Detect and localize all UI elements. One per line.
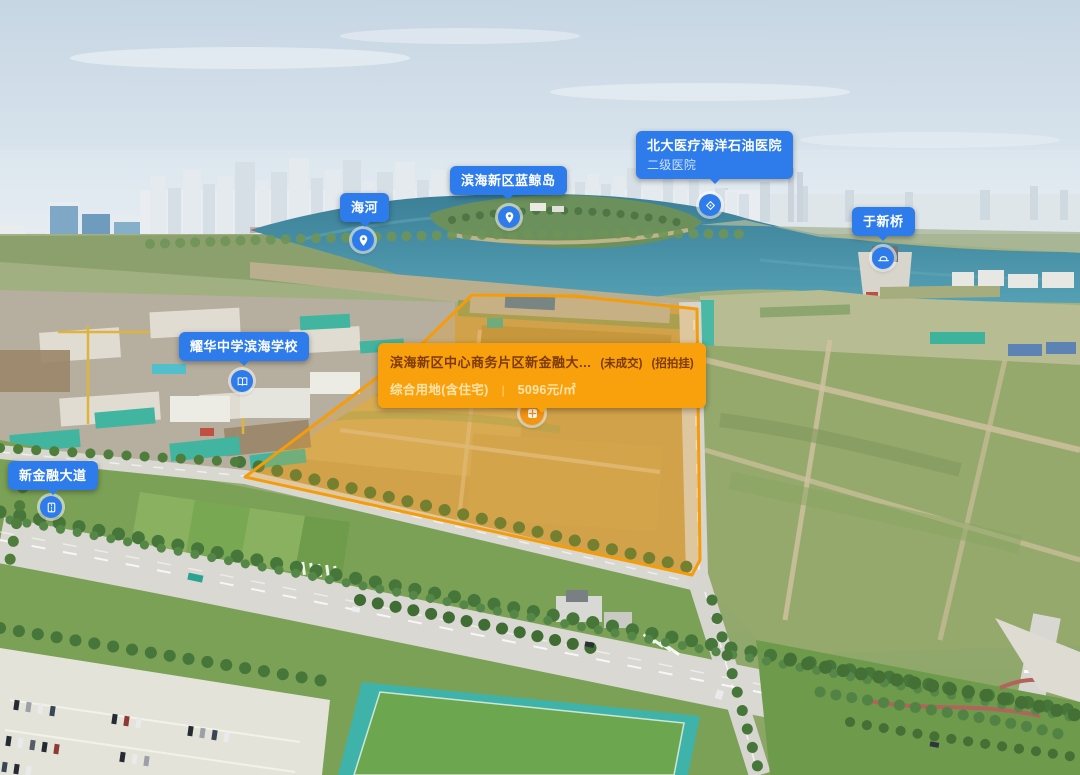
poi-label-subtitle: 二级医院 [647,159,782,171]
parcel-title: 滨海新区中心商务片区新金融大... [390,352,591,371]
parcel-sale-type-tag: (招拍挂) [652,355,694,371]
poi-label-haihe[interactable]: 海河 [340,193,389,222]
poi-label-blue-whale-island[interactable]: 滨海新区蓝鲸岛 [450,166,567,195]
parcel-card-row1: 滨海新区中心商务片区新金融大... (未成交) (招拍挂) [390,352,694,371]
road-icon[interactable] [40,496,62,518]
divider: | [502,383,505,397]
east-fields [700,340,1080,655]
poi-label-school[interactable]: 耀华中学滨海学校 [179,332,309,361]
poi-label-text: 于新桥 [863,214,904,229]
location-pin-icon[interactable] [352,229,374,251]
poi-label-text: 耀华中学滨海学校 [190,339,298,354]
bridge-glyph [877,252,890,265]
poi-label-text: 北大医疗海洋石油医院 [647,138,782,153]
poi-label-text: 滨海新区蓝鲸岛 [461,173,556,188]
parcel-price: 5096元/㎡ [518,379,576,398]
bridge-icon[interactable] [872,247,894,269]
school-icon[interactable] [231,370,253,392]
road-glyph [45,501,58,514]
parcel-card-row2: 综合用地(含住宅) | 5096元/㎡ [390,379,694,398]
parcel-status-tag: (未成交) [600,355,642,371]
poi-label-text: 海河 [351,200,378,215]
map-viewport[interactable]: 海河 滨海新区蓝鲸岛 北大医疗海洋石油医院 二级医院 于新桥 耀华中学滨海学校 [0,0,1080,775]
diamond-marker-icon[interactable] [699,194,721,216]
poi-label-yuxin-bridge[interactable]: 于新桥 [852,207,915,236]
parcel-land-use: 综合用地(含住宅) [390,379,489,398]
poi-label-hospital[interactable]: 北大医疗海洋石油医院 二级医院 [636,131,793,179]
school-glyph [236,375,249,388]
diamond-marker-glyph [704,199,717,212]
location-pin-glyph [357,234,370,247]
parcel-card[interactable]: 滨海新区中心商务片区新金融大... (未成交) (招拍挂) 综合用地(含住宅) … [378,343,706,408]
location-pin-icon[interactable] [498,206,520,228]
location-pin-glyph [503,211,516,224]
poi-label-text: 新金融大道 [19,468,87,483]
poi-label-new-finance-avenue[interactable]: 新金融大道 [8,461,98,490]
